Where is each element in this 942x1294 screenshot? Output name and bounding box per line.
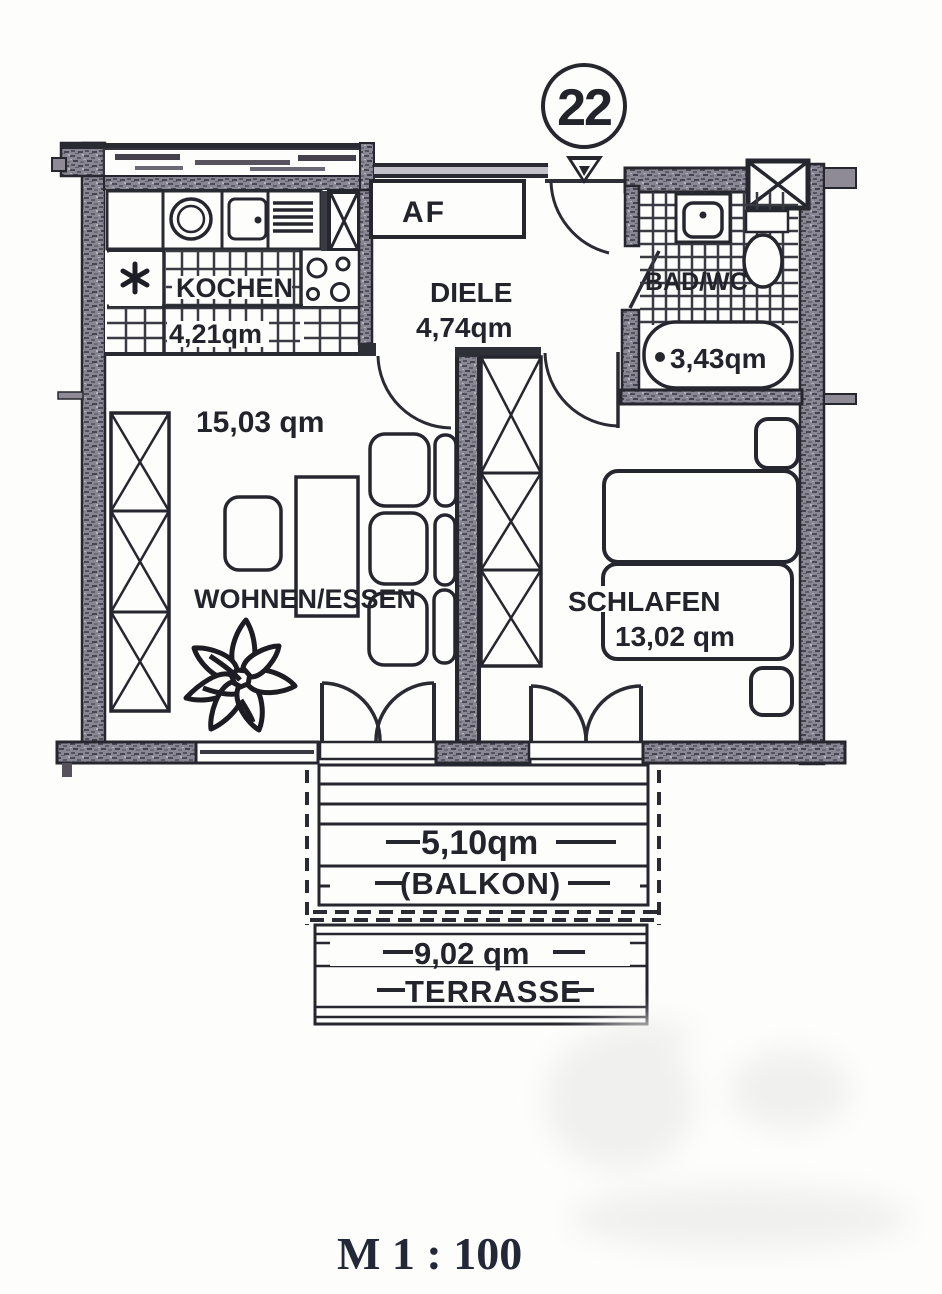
- svg-text:AF: AF: [402, 196, 446, 229]
- svg-text:9,02 qm: 9,02 qm: [414, 936, 529, 971]
- svg-text:3,43qm: 3,43qm: [670, 343, 767, 374]
- svg-text:13,02 qm: 13,02 qm: [615, 621, 735, 652]
- svg-text:4,74qm: 4,74qm: [416, 312, 513, 343]
- svg-text:BAD/WC: BAD/WC: [645, 268, 748, 296]
- svg-text:5,10qm: 5,10qm: [421, 824, 538, 862]
- svg-text:TERRASSE: TERRASSE: [405, 974, 582, 1009]
- svg-text:DIELE: DIELE: [430, 277, 512, 308]
- svg-text:22: 22: [557, 79, 611, 137]
- svg-text:SCHLAFEN: SCHLAFEN: [568, 586, 720, 617]
- svg-text:WOHNEN/ESSEN: WOHNEN/ESSEN: [194, 584, 416, 614]
- svg-text:KOCHEN: KOCHEN: [176, 273, 293, 303]
- svg-text:M 1 : 100: M 1 : 100: [337, 1228, 522, 1279]
- svg-text:15,03 qm: 15,03 qm: [196, 406, 324, 439]
- svg-text:4,21qm: 4,21qm: [169, 319, 262, 349]
- svg-text:(BALKON): (BALKON): [400, 866, 561, 901]
